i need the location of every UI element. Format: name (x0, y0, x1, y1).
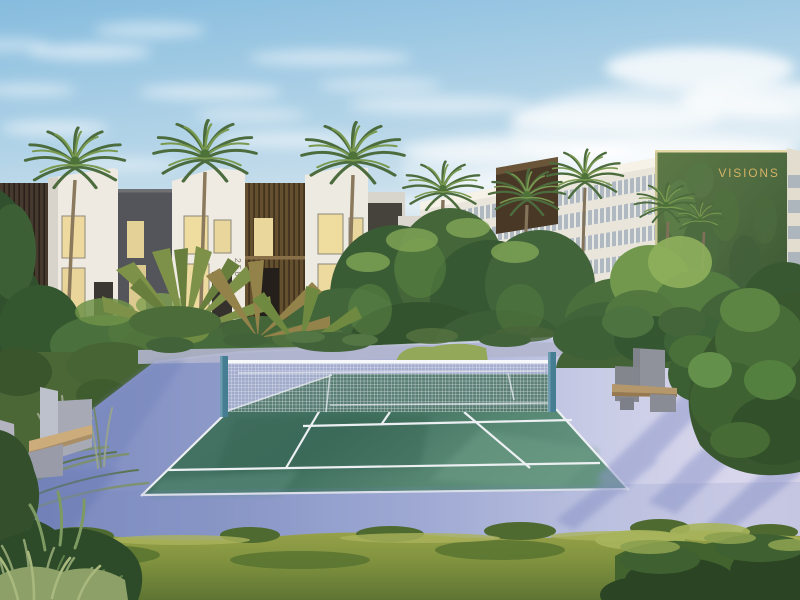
svg-text:VISIONS: VISIONS (718, 166, 779, 180)
